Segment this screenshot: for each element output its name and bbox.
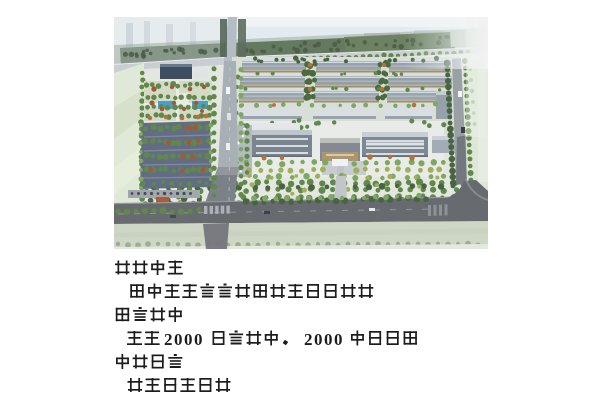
svg-text:2000: 2000	[304, 330, 344, 349]
svg-text:2000: 2000	[164, 330, 204, 349]
